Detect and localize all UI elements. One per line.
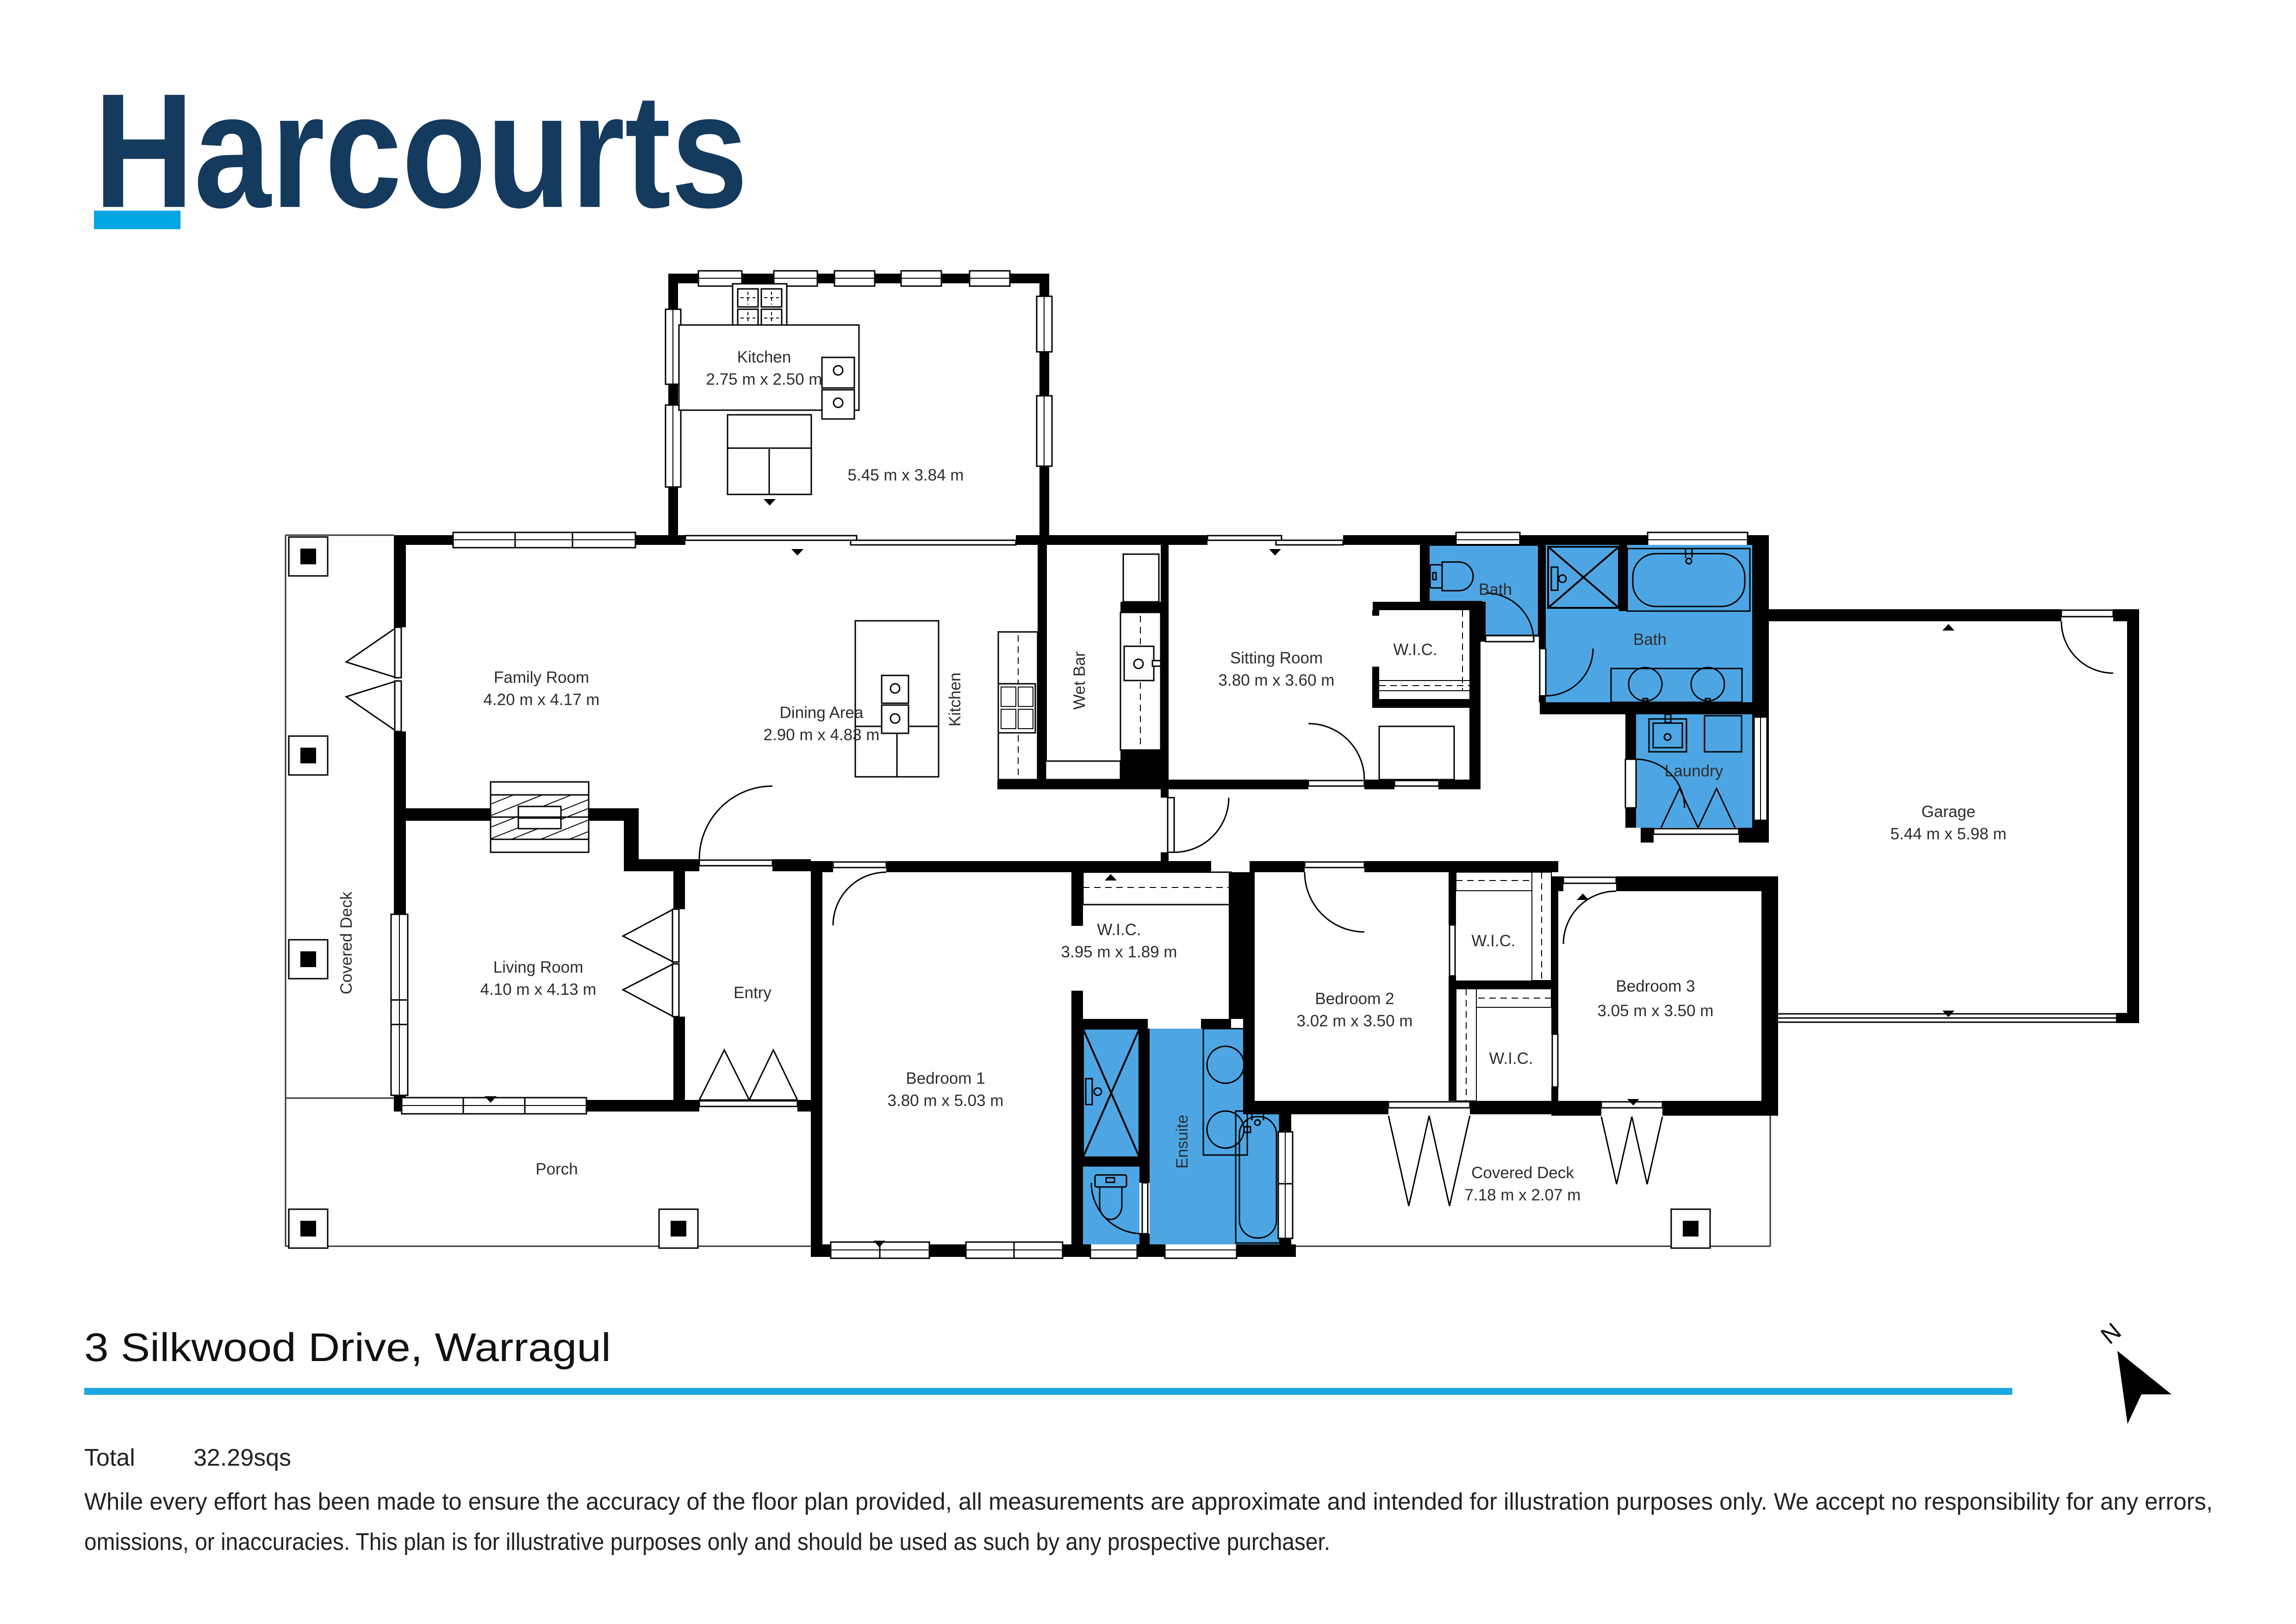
svg-text:W.I.C.: W.I.C. (1097, 921, 1141, 939)
svg-text:2.75 m x 2.50 m: 2.75 m x 2.50 m (706, 370, 822, 388)
svg-text:Bedroom 1: Bedroom 1 (906, 1069, 985, 1087)
svg-text:Entry: Entry (734, 984, 772, 1002)
svg-text:Laundry: Laundry (1665, 762, 1724, 780)
svg-text:3 Silkwood Drive, Warragul: 3 Silkwood Drive, Warragul (84, 1325, 611, 1370)
svg-text:Harcourts: Harcourts (94, 59, 748, 242)
svg-text:Kitchen: Kitchen (946, 673, 964, 727)
svg-text:2.90 m x 4.83 m: 2.90 m x 4.83 m (764, 726, 880, 744)
svg-text:7.18 m x 2.07 m: 7.18 m x 2.07 m (1465, 1186, 1581, 1204)
svg-text:Bedroom 3: Bedroom 3 (1616, 977, 1695, 995)
svg-text:Covered Deck: Covered Deck (1471, 1164, 1574, 1182)
svg-text:Bath: Bath (1633, 631, 1667, 649)
svg-text:Covered Deck: Covered Deck (337, 892, 355, 994)
svg-text:Sitting Room: Sitting Room (1230, 649, 1323, 667)
svg-text:Ensuite: Ensuite (1173, 1115, 1191, 1169)
svg-text:3.02 m x 3.50 m: 3.02 m x 3.50 m (1297, 1012, 1413, 1030)
svg-text:omissions, or inaccuracies. Th: omissions, or inaccuracies. This plan is… (84, 1529, 1330, 1555)
svg-text:Bath: Bath (1479, 581, 1512, 599)
svg-text:4.10 m x 4.13 m: 4.10 m x 4.13 m (480, 981, 597, 999)
svg-text:32.29sqs: 32.29sqs (193, 1444, 291, 1471)
svg-text:Family Room: Family Room (494, 668, 589, 687)
svg-text:Total: Total (84, 1444, 135, 1471)
svg-text:Kitchen: Kitchen (737, 348, 791, 366)
svg-text:Dining Area: Dining Area (780, 704, 864, 722)
svg-text:3.05 m x 3.50 m: 3.05 m x 3.50 m (1598, 1002, 1714, 1020)
svg-text:5.44 m x 5.98 m: 5.44 m x 5.98 m (1891, 825, 2007, 843)
svg-text:Garage: Garage (1922, 803, 1976, 821)
svg-text:3.80 m x 3.60 m: 3.80 m x 3.60 m (1219, 671, 1335, 689)
svg-text:Porch: Porch (535, 1160, 578, 1178)
svg-text:While every effort has been ma: While every effort has been made to ensu… (84, 1488, 2213, 1515)
svg-text:Wet Bar: Wet Bar (1070, 651, 1089, 710)
svg-text:W.I.C.: W.I.C. (1489, 1049, 1533, 1068)
svg-text:Bedroom 2: Bedroom 2 (1315, 990, 1394, 1008)
svg-text:3.95 m x 1.89 m: 3.95 m x 1.89 m (1061, 943, 1177, 961)
svg-text:W.I.C.: W.I.C. (1471, 932, 1515, 950)
svg-text:3.80 m x 5.03 m: 3.80 m x 5.03 m (888, 1092, 1004, 1110)
svg-text:5.45 m x 3.84 m: 5.45 m x 3.84 m (848, 466, 964, 484)
svg-text:4.20 m x 4.17 m: 4.20 m x 4.17 m (484, 691, 600, 709)
svg-text:Living Room: Living Room (493, 958, 584, 976)
svg-text:W.I.C.: W.I.C. (1393, 641, 1437, 659)
